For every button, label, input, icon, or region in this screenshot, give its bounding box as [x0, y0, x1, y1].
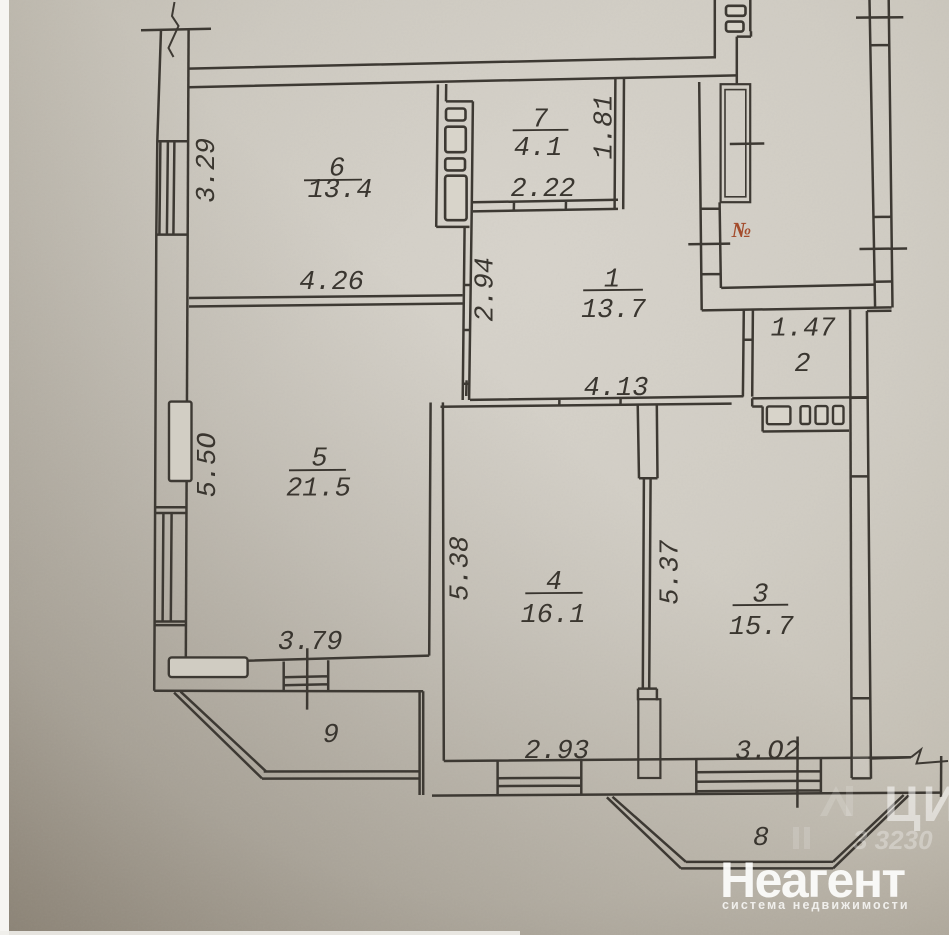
- svg-text:3.79: 3.79: [278, 628, 343, 658]
- svg-text:ЦИ: ЦИ: [884, 776, 949, 832]
- svg-text:4.1: 4.1: [514, 134, 563, 164]
- svg-text:1: 1: [604, 266, 620, 296]
- svg-text:2.22: 2.22: [510, 175, 575, 205]
- svg-text:16.1: 16.1: [521, 601, 586, 631]
- svg-text:21.5: 21.5: [286, 475, 351, 505]
- svg-text:5.38: 5.38: [447, 536, 477, 601]
- svg-text:1.81: 1.81: [591, 95, 621, 160]
- svg-text:5.5O: 5.5O: [194, 433, 224, 498]
- svg-text:8: 8: [753, 824, 769, 854]
- svg-text:3.O2: 3.O2: [735, 738, 800, 768]
- svg-text:1.47: 1.47: [771, 315, 837, 345]
- svg-text:9: 9: [323, 721, 339, 751]
- svg-text:3.29: 3.29: [193, 138, 223, 203]
- svg-text:2.94: 2.94: [472, 257, 502, 322]
- svg-text:5.37: 5.37: [657, 539, 687, 605]
- svg-text:15.7: 15.7: [729, 613, 795, 643]
- svg-text:4.13: 4.13: [584, 374, 649, 404]
- svg-text:система недвижимости: система недвижимости: [722, 898, 910, 912]
- svg-text:4.26: 4.26: [299, 268, 364, 298]
- svg-text:№: №: [731, 218, 752, 242]
- svg-text:2: 2: [794, 350, 810, 380]
- svg-text:3 3230: 3 3230: [853, 825, 933, 855]
- svg-text:2.93: 2.93: [524, 737, 589, 767]
- svg-text:3: 3: [752, 581, 768, 611]
- svg-text:13.7: 13.7: [581, 296, 647, 326]
